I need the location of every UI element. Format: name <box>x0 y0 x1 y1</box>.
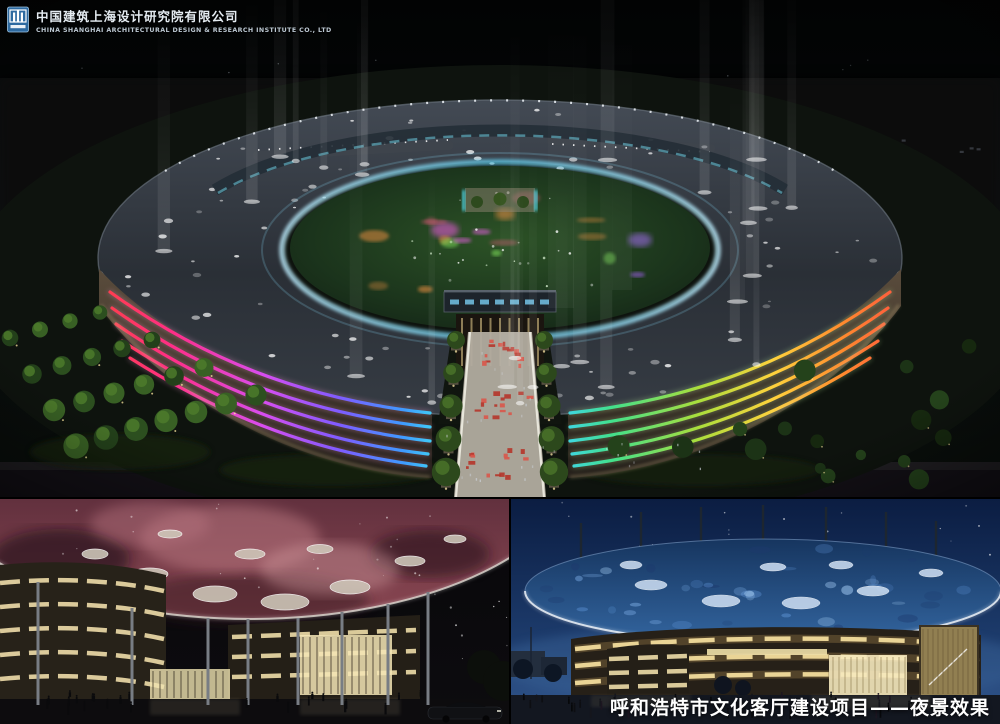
company-name-block: 中国建筑上海设计研究院有限公司 CHINA SHANGHAI ARCHITECT… <box>36 6 332 34</box>
aerial-night-rendering <box>0 0 1000 497</box>
lobby-glass <box>150 669 230 699</box>
project-caption: 呼和浩特市文化客厅建设项目——夜景效果 <box>610 693 990 720</box>
entrance-glass <box>829 655 907 695</box>
banded-building <box>571 625 981 697</box>
tree-silhouette <box>714 676 732 694</box>
company-name-zh: 中国建筑上海设计研究院有限公司 <box>36 6 332 25</box>
nebula-canopy-rendering-panel <box>0 499 509 724</box>
cscec-emblem-icon <box>7 6 29 33</box>
lit-glass-hall <box>300 635 392 695</box>
aerial-night-rendering-panel: 中国建筑上海设计研究院有限公司 CHINA SHANGHAI ARCHITECT… <box>0 0 1000 497</box>
blue-disc-rendering-panel: 呼和浩特市文化客厅建设项目——夜景效果 <box>511 499 1000 724</box>
left-podium-building <box>0 562 166 704</box>
company-name-en: CHINA SHANGHAI ARCHITECTURAL DESIGN & RE… <box>36 27 332 34</box>
nebula-canopy-rendering <box>0 499 509 724</box>
presentation-board: 中国建筑上海设计研究院有限公司 CHINA SHANGHAI ARCHITECT… <box>0 0 1000 724</box>
blue-disc-rendering <box>511 499 1000 724</box>
canopy <box>707 649 827 655</box>
company-logo: 中国建筑上海设计研究院有限公司 CHINA SHANGHAI ARCHITECT… <box>7 6 332 34</box>
